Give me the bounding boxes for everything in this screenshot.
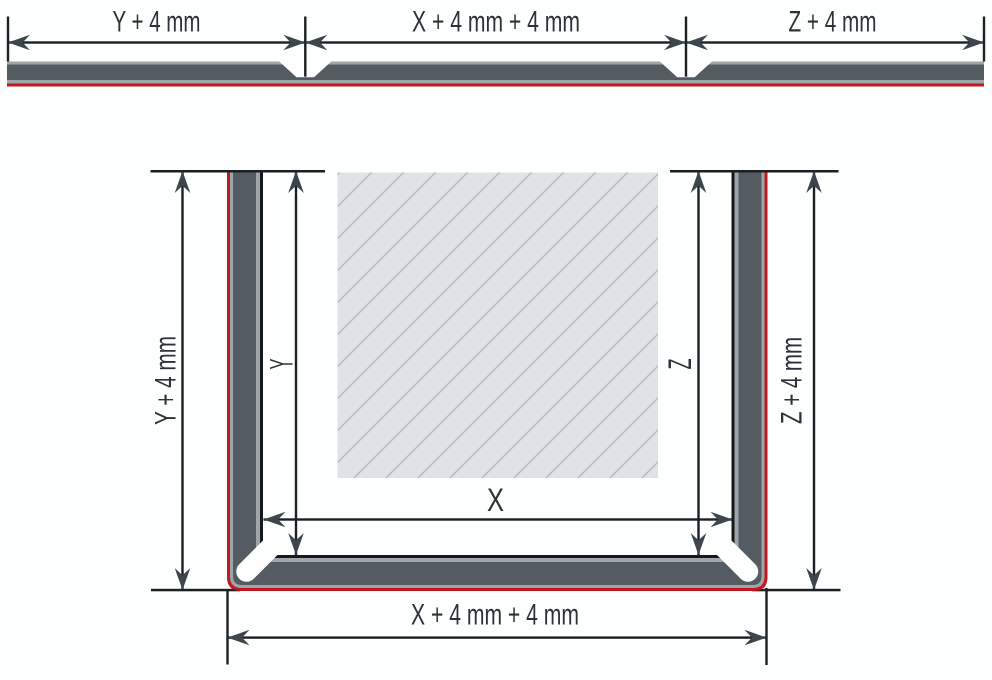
svg-text:Y + 4 mm: Y + 4 mm: [113, 6, 201, 39]
svg-text:Y + 4 mm: Y + 4 mm: [150, 336, 183, 425]
svg-text:X + 4 mm + 4 mm: X + 4 mm + 4 mm: [412, 6, 580, 39]
svg-text:X: X: [487, 482, 504, 518]
svg-text:Z + 4 mm: Z + 4 mm: [789, 6, 877, 39]
svg-text:Z + 4 mm: Z + 4 mm: [776, 337, 809, 424]
svg-text:Y: Y: [264, 359, 300, 370]
svg-text:X + 4 mm + 4 mm: X + 4 mm + 4 mm: [411, 599, 579, 632]
svg-text:Z: Z: [662, 359, 698, 370]
